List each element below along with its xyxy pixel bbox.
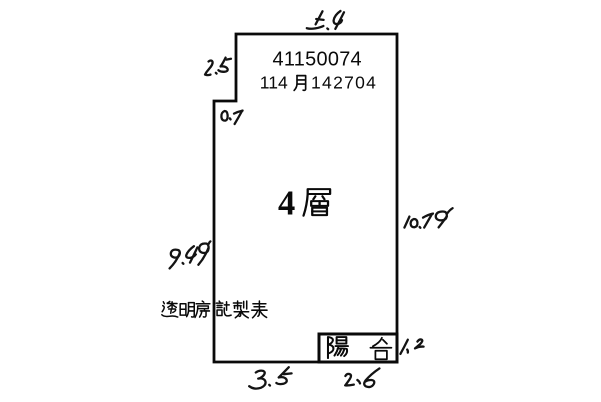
svg-text:114: 114 (260, 73, 288, 93)
svg-text:142704: 142704 (311, 73, 377, 93)
svg-text:4: 4 (278, 185, 295, 223)
svg-text:41150074: 41150074 (273, 49, 362, 71)
